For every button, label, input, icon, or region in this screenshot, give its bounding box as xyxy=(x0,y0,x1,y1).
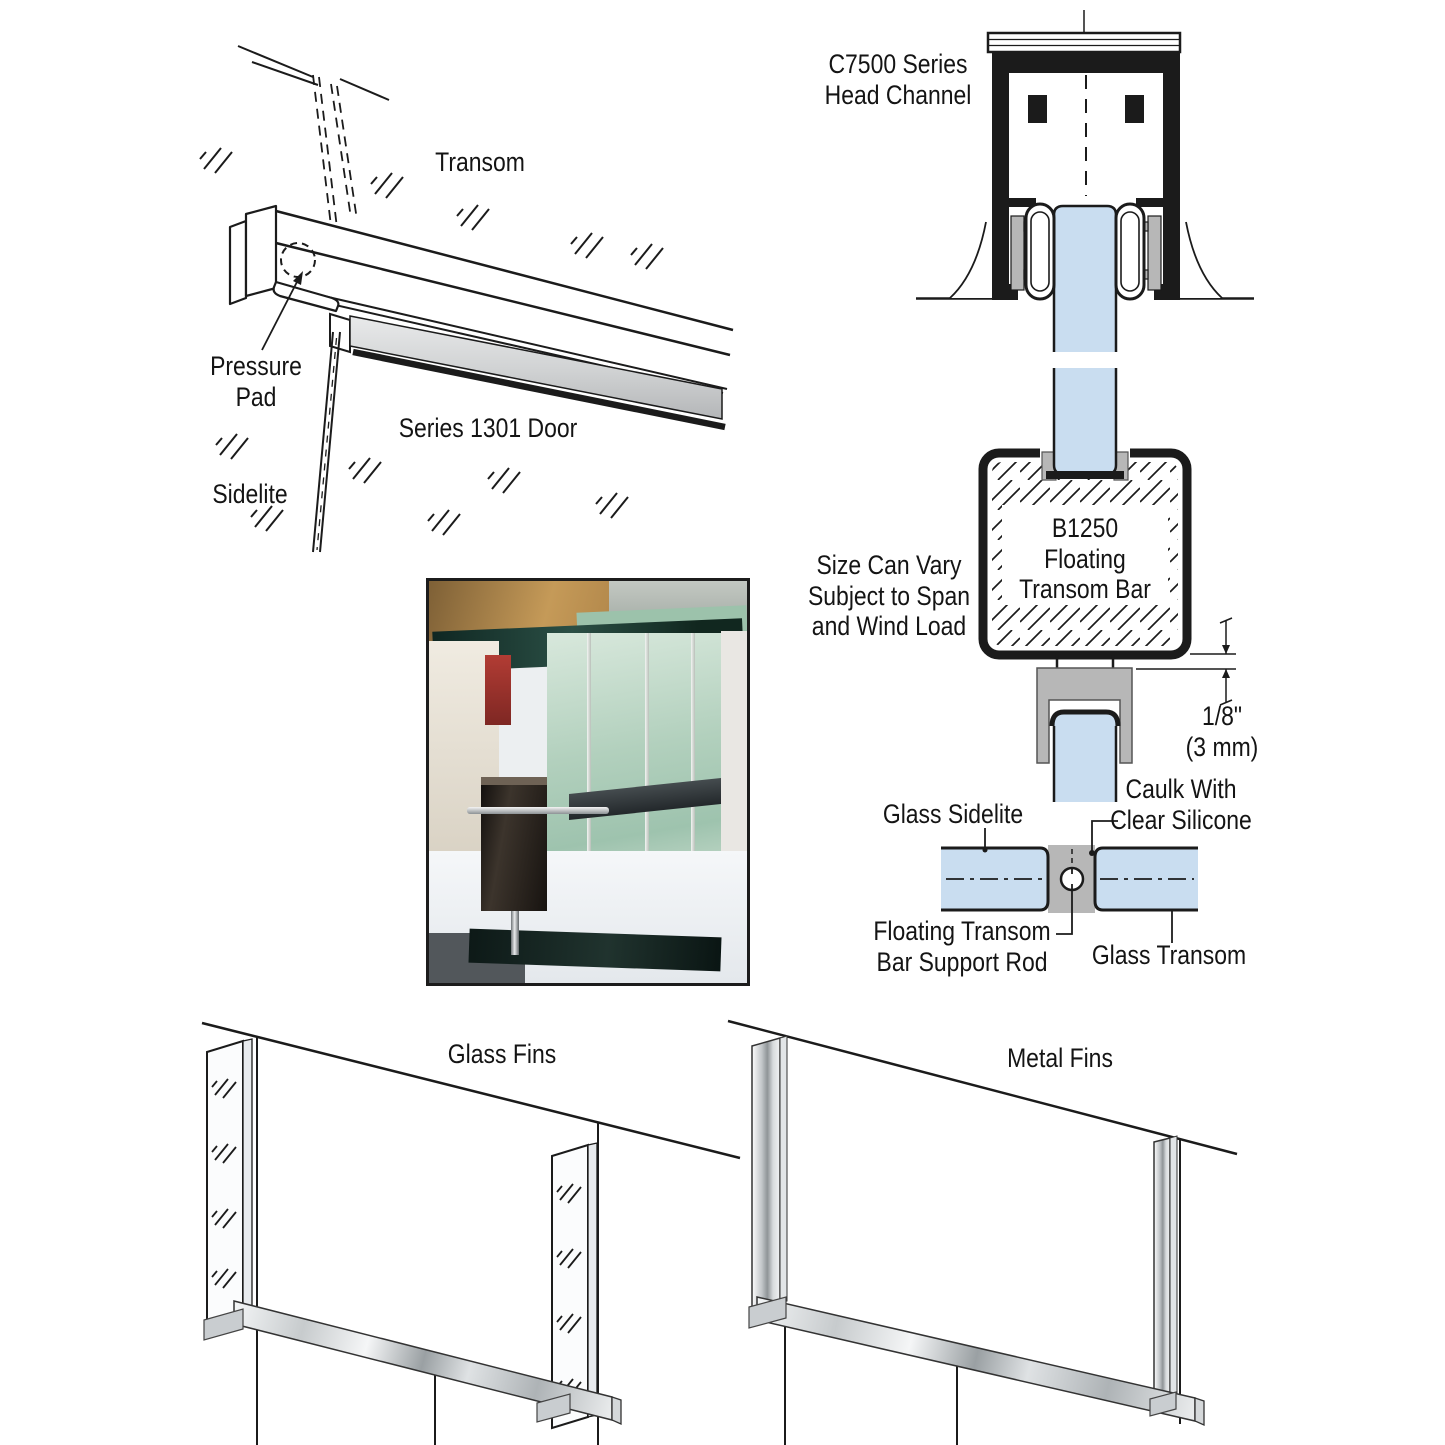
glass-panel-mid xyxy=(1046,368,1124,479)
metal-fins-diagram xyxy=(700,1010,1320,1445)
catalog-diagram-page: Transom Pressure Pad Series 1301 Door Si… xyxy=(0,0,1445,1445)
label-support-rod: Floating Transom Bar Support Rod xyxy=(873,916,1050,977)
label-transom: Transom xyxy=(435,147,525,178)
label-series-1301-door: Series 1301 Door xyxy=(399,413,578,444)
photo-chrome-post xyxy=(511,911,519,955)
label-glass-fins: Glass Fins xyxy=(448,1039,556,1070)
label-size-note: Size Can Vary Subject to Span and Wind L… xyxy=(808,550,970,642)
label-glass-transom: Glass Transom xyxy=(1092,940,1246,971)
right-metal-fin xyxy=(1154,1136,1177,1407)
ceiling-edge-lines xyxy=(238,46,389,100)
photo-cabinet-top xyxy=(481,777,547,785)
section-detail-diagram xyxy=(780,20,1300,1000)
door-top-rail xyxy=(330,314,725,427)
glass-panel-lower xyxy=(1052,712,1118,802)
ceiling-edge xyxy=(728,1021,1237,1154)
floating-transom-bar xyxy=(757,1297,1204,1425)
label-head-channel: C7500 Series Head Channel xyxy=(825,49,972,110)
label-pressure-pad: Pressure Pad xyxy=(210,351,302,412)
label-sidelite: Sidelite xyxy=(212,479,287,510)
plan-view-joint xyxy=(941,845,1198,913)
left-metal-fin xyxy=(752,1036,787,1311)
label-metal-fins: Metal Fins xyxy=(1007,1043,1113,1074)
photo-right-pillar xyxy=(721,631,747,883)
label-b1250-bar: B1250 Floating Transom Bar xyxy=(1019,513,1151,605)
photo-cabinet xyxy=(481,781,547,911)
mounting-plate xyxy=(988,10,1180,52)
label-caulk: Caulk With Clear Silicone xyxy=(1110,774,1252,835)
left-glass-fin xyxy=(207,1039,252,1323)
door-glass-edge xyxy=(313,332,340,552)
label-dimension: 1/8" (3 mm) xyxy=(1186,701,1259,762)
installation-photo xyxy=(426,578,750,986)
photo-red-panel xyxy=(485,655,511,725)
glass-panel-upper xyxy=(1054,206,1116,352)
hidden-glass-dashed-lines xyxy=(313,75,357,228)
photo-handrail xyxy=(467,807,609,814)
label-glass-sidelite: Glass Sidelite xyxy=(883,799,1023,830)
glass-fins-diagram xyxy=(150,1010,770,1445)
